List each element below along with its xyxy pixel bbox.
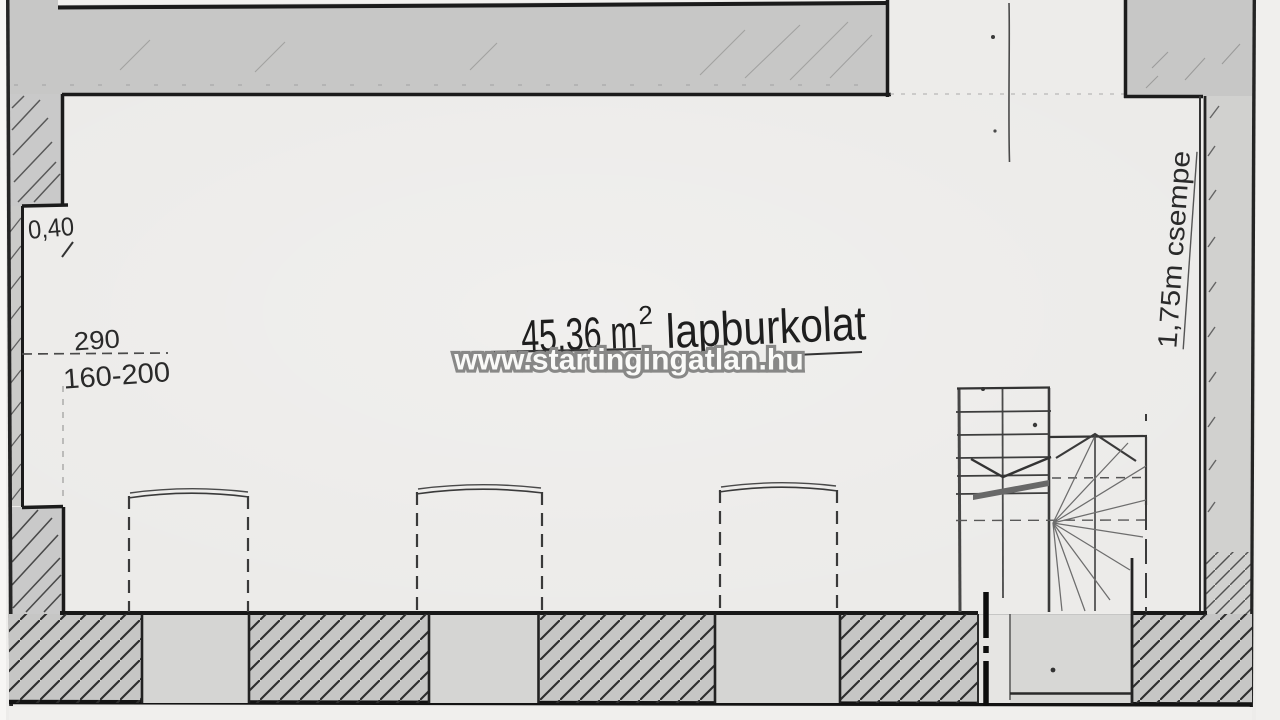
svg-text:www.startingingatlan.hu: www.startingingatlan.hu bbox=[453, 344, 804, 377]
svg-text:2: 2 bbox=[638, 300, 654, 331]
svg-text:0,40: 0,40 bbox=[27, 211, 75, 245]
svg-text:290: 290 bbox=[73, 323, 121, 356]
